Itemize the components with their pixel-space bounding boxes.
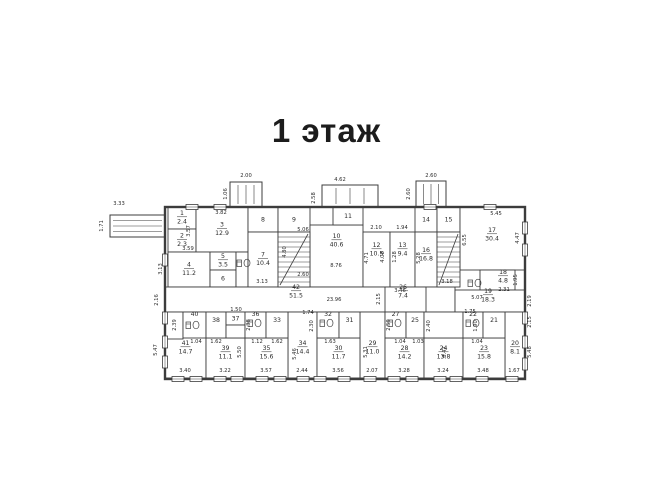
- room-number: 31: [346, 317, 354, 324]
- dim-label: 1.62: [210, 339, 222, 345]
- room-number: 37: [232, 316, 240, 323]
- dim-label: 3.18: [441, 279, 453, 285]
- room-number: 34: [299, 340, 307, 347]
- dim-label: 3.48: [477, 368, 489, 374]
- dim-label: 3.13: [158, 263, 164, 275]
- room-area: 2.4: [177, 219, 187, 226]
- dim-label: 4.08: [380, 251, 386, 263]
- room-number: 42: [292, 284, 300, 291]
- dim-label: 1.95: [513, 274, 519, 286]
- page: 1 этаж 12.422.3312.9411.253.5689710.4104…: [0, 0, 653, 489]
- room-area: 30.4: [485, 236, 499, 243]
- room-area: 11.7: [332, 354, 346, 361]
- dim-label: 2.30: [309, 320, 315, 332]
- room-area: 40.6: [330, 242, 344, 249]
- room-number: 35: [263, 345, 271, 352]
- room-number: 10: [333, 233, 341, 240]
- dim-label: 1.06: [223, 188, 229, 200]
- dim-label: 1.28: [392, 251, 398, 263]
- room-area: 3.5: [218, 262, 228, 269]
- dim-label: 4.71: [364, 252, 370, 264]
- room-outline: [226, 325, 245, 338]
- dim-label: 6.55: [462, 234, 468, 246]
- room-area: 11.1: [219, 354, 233, 361]
- room-number: 27: [392, 311, 400, 318]
- room-area: 15.8: [477, 354, 491, 361]
- room-number: 11: [344, 213, 352, 220]
- dim-label: 1.50: [230, 307, 242, 313]
- room-number: 23: [480, 345, 488, 352]
- room-number: 1: [180, 210, 184, 217]
- room-outline: [406, 312, 424, 338]
- room-outline: [236, 252, 248, 287]
- room-area: 51.5: [289, 293, 303, 300]
- room-outline: [339, 312, 360, 338]
- dim-label: 5.28: [416, 252, 422, 264]
- dim-label: 3.59: [182, 246, 194, 252]
- dim-label: 2.15: [376, 293, 382, 305]
- room-number: 33: [273, 317, 281, 324]
- dim-label: 2.39: [172, 319, 178, 331]
- dim-label: 2.60: [297, 272, 309, 278]
- room-number: 5: [221, 253, 225, 260]
- dim-label: 2.15: [527, 316, 533, 328]
- room-number: 38: [212, 317, 220, 324]
- room-number: 17: [488, 227, 496, 234]
- room-number: 3: [220, 222, 224, 229]
- dim-label: 1.90: [473, 320, 479, 332]
- dim-label: 2.31: [498, 287, 510, 293]
- room-number: 25: [411, 317, 419, 324]
- room-area: 8.1: [510, 349, 520, 356]
- dim-label: 1.04: [190, 339, 202, 345]
- room-area: 14.2: [398, 354, 412, 361]
- dim-label: 2.44: [296, 368, 308, 374]
- room-area: 10.4: [256, 260, 270, 267]
- dim-label: 2.19: [527, 295, 533, 307]
- room-outline: [483, 312, 505, 338]
- room-number: 2: [180, 233, 184, 240]
- dim-label: 3.28: [398, 368, 410, 374]
- room-area: 11.2: [182, 270, 196, 277]
- room-number: 36: [252, 311, 260, 318]
- dim-label: 23.96: [327, 297, 342, 303]
- dim-label: 2.38: [246, 319, 252, 331]
- room-area: 14.7: [179, 349, 193, 356]
- dim-label: 1.04: [471, 339, 483, 345]
- dim-label: 3.40: [179, 368, 191, 374]
- room-number: 41: [182, 340, 190, 347]
- toilet-icon: [468, 280, 473, 287]
- dim-label: 2.16: [154, 294, 160, 306]
- dim-label: 2.07: [366, 368, 378, 374]
- room-number: 12: [373, 242, 381, 249]
- room-number: 4: [187, 262, 191, 269]
- dim-label: 8.47: [442, 346, 448, 358]
- dim-label: 3.57: [186, 225, 192, 237]
- dim-label: 1.74: [302, 310, 314, 316]
- room-outline: [266, 312, 288, 338]
- dim-label: 4.62: [334, 177, 346, 183]
- room-number: 13: [399, 242, 407, 249]
- dim-label: 4.80: [282, 246, 288, 258]
- dim-label: 1.71: [99, 220, 105, 232]
- dim-label: 1.62: [271, 339, 283, 345]
- dim-label: 1.03: [412, 339, 424, 345]
- room-outline: [206, 312, 226, 338]
- dim-label: 2.60: [406, 188, 412, 200]
- dim-label: 5.45: [490, 211, 502, 217]
- room-number: 6: [221, 276, 225, 283]
- dim-label: 8.76: [330, 263, 342, 269]
- room-number: 30: [335, 345, 343, 352]
- dim-label: 1.12: [251, 339, 263, 345]
- dim-label: 5.46: [292, 348, 298, 360]
- dim-label: 5.47: [153, 344, 159, 356]
- dim-label: 3.56: [332, 368, 344, 374]
- dim-label: 5.31: [363, 346, 369, 358]
- dim-label: 2.40: [426, 320, 432, 332]
- dim-label: 5.48: [527, 346, 533, 358]
- dim-label: 3.24: [437, 368, 449, 374]
- dim-label: 3.22: [219, 368, 231, 374]
- dim-label: 1.94: [396, 225, 408, 231]
- room-number: 9: [292, 217, 296, 224]
- dim-label: 5.07: [471, 295, 483, 301]
- room-number: 15: [445, 217, 453, 224]
- room-number: 20: [511, 340, 519, 347]
- dim-label: 5.50: [237, 346, 243, 358]
- dim-label: 3.13: [256, 279, 268, 285]
- dim-label: 1.63: [324, 339, 336, 345]
- dim-label: 1.75: [464, 309, 476, 315]
- room-area: 18.3: [481, 297, 495, 304]
- floor-plan-svg: 12.422.3312.9411.253.5689710.41040.61112…: [0, 0, 653, 489]
- dim-label: 3.33: [113, 201, 125, 207]
- room-number: 32: [324, 311, 332, 318]
- room-number: 40: [191, 311, 199, 318]
- room-number: 16: [422, 247, 430, 254]
- dim-label: 2.60: [425, 173, 437, 179]
- room-number: 29: [369, 340, 377, 347]
- dim-label: 3.57: [260, 368, 272, 374]
- room-area: 4.8: [498, 278, 508, 285]
- dim-label: 3.82: [215, 210, 227, 216]
- room-number: 21: [490, 317, 498, 324]
- room-area: 9.4: [398, 251, 408, 258]
- dim-label: 2.59: [386, 319, 392, 331]
- dim-label: 4.47: [515, 232, 521, 244]
- dim-label: 2.10: [370, 225, 382, 231]
- room-number: 18: [499, 269, 507, 276]
- room-area: 12.9: [215, 230, 229, 237]
- room-number: 39: [222, 345, 230, 352]
- room-number: 8: [261, 217, 265, 224]
- room-number: 19: [484, 288, 492, 295]
- dim-label: 1.04: [394, 339, 406, 345]
- dim-label: 3.46: [394, 288, 406, 294]
- dim-label: 2.00: [240, 173, 252, 179]
- room-number: 14: [422, 217, 430, 224]
- dim-label: 1.67: [508, 368, 520, 374]
- room-number: 28: [401, 345, 409, 352]
- room-area: 15.6: [260, 354, 274, 361]
- room-number: 7: [261, 252, 265, 259]
- dim-label: 5.06: [297, 227, 309, 233]
- dim-label: 2.58: [311, 192, 317, 204]
